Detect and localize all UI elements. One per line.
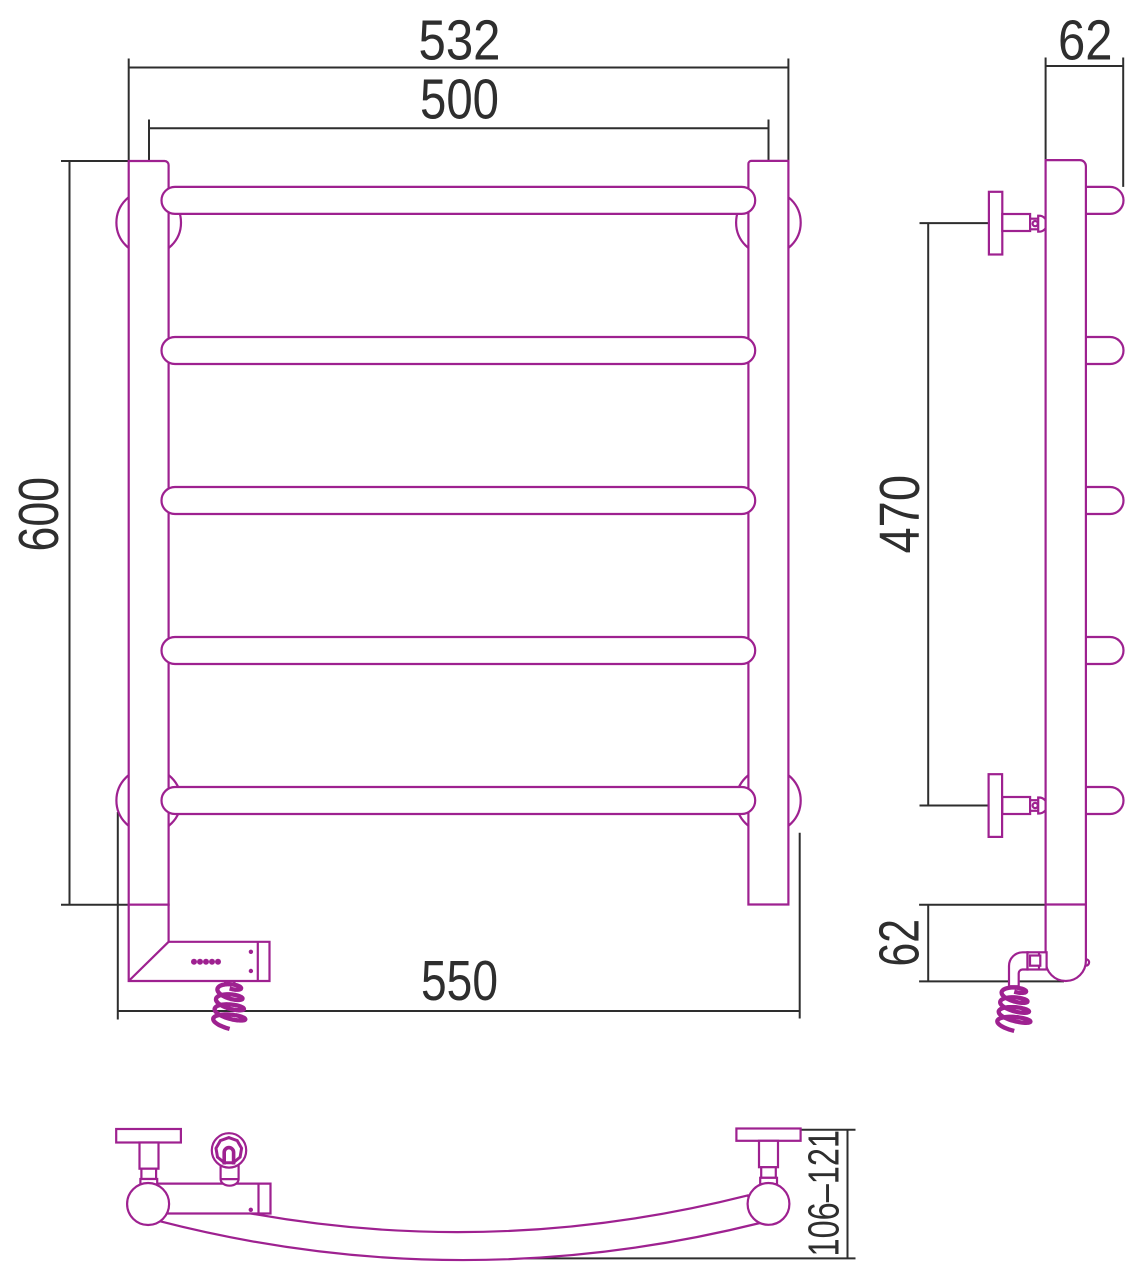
svg-text:470: 470 xyxy=(868,475,932,554)
svg-text:62: 62 xyxy=(867,919,931,967)
svg-text:500: 500 xyxy=(420,68,499,132)
svg-text:532: 532 xyxy=(419,9,501,73)
svg-text:600: 600 xyxy=(7,477,71,552)
svg-text:106–121: 106–121 xyxy=(800,1130,849,1257)
svg-text:550: 550 xyxy=(421,949,498,1013)
svg-text:62: 62 xyxy=(1058,9,1113,73)
